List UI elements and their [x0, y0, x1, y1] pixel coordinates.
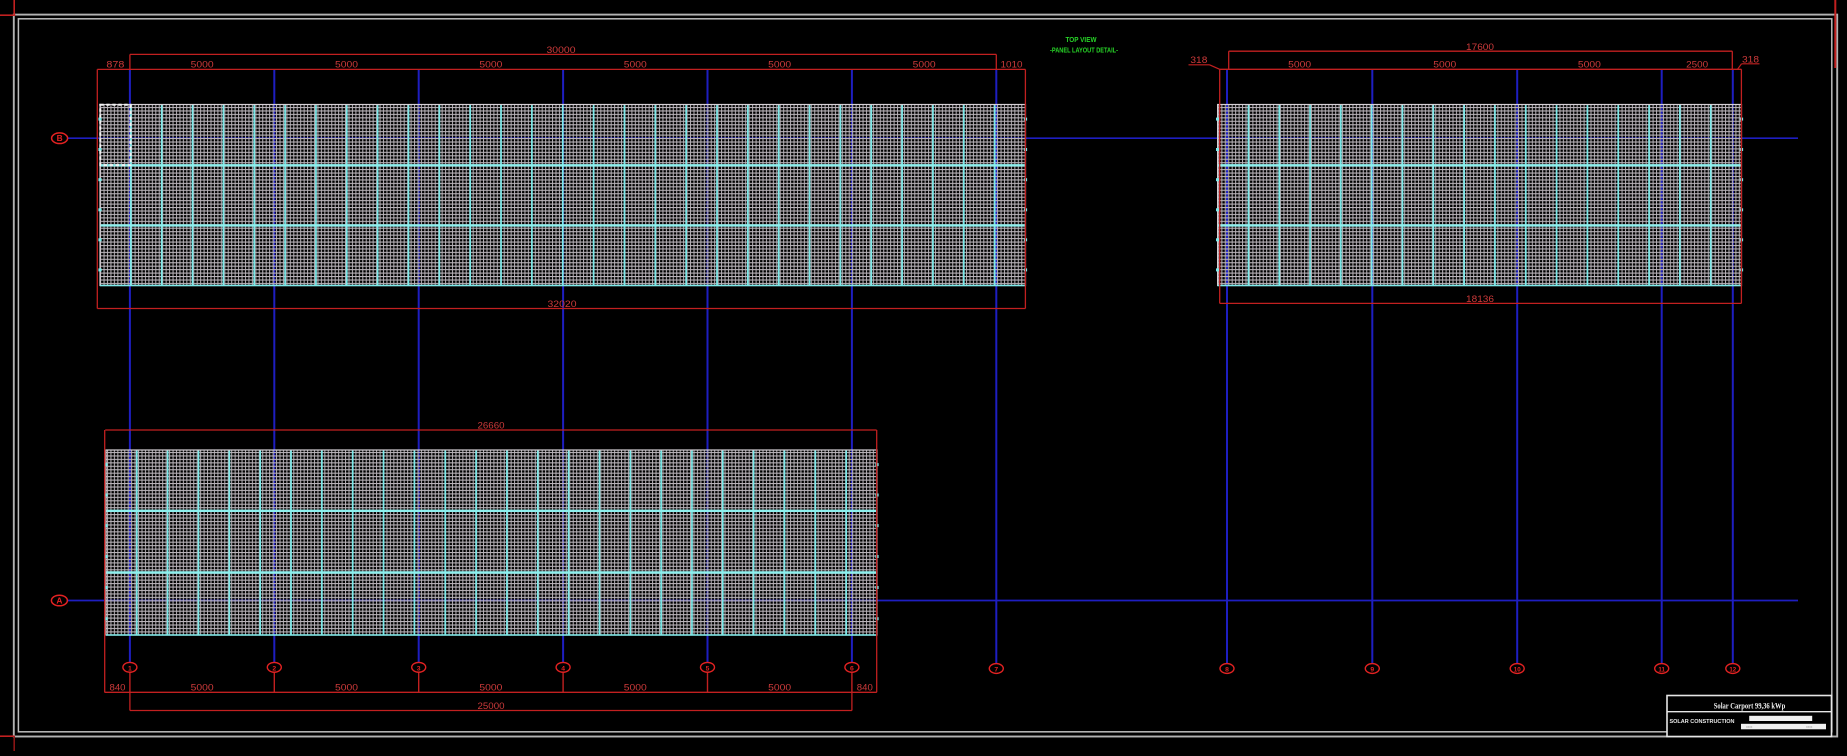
svg-text:5000: 5000 — [624, 683, 647, 693]
svg-text:1010: 1010 — [1001, 60, 1023, 70]
svg-text:5000: 5000 — [1433, 60, 1456, 70]
svg-text:5000: 5000 — [624, 60, 647, 70]
svg-text:17600: 17600 — [1466, 42, 1494, 52]
svg-text:A: A — [56, 596, 62, 606]
svg-text:5000: 5000 — [479, 683, 502, 693]
svg-text:2: 2 — [272, 665, 276, 672]
svg-text:10: 10 — [1514, 666, 1521, 673]
svg-text:3: 3 — [417, 665, 421, 672]
svg-text:30000: 30000 — [547, 45, 576, 55]
svg-text:18136: 18136 — [1466, 294, 1494, 304]
svg-text:5000: 5000 — [1578, 60, 1601, 70]
svg-text:878: 878 — [106, 60, 124, 70]
svg-text:5000: 5000 — [768, 60, 791, 70]
svg-text:SOLAR CONSTRUCTION: SOLAR CONSTRUCTION — [1670, 719, 1735, 725]
svg-text:5000: 5000 — [191, 683, 214, 693]
svg-text:B: B — [57, 133, 63, 143]
svg-text:318: 318 — [1190, 55, 1207, 65]
svg-text:5000: 5000 — [1288, 60, 1311, 70]
svg-text:5000: 5000 — [335, 683, 358, 693]
svg-text:5000: 5000 — [913, 60, 936, 70]
svg-text:5000: 5000 — [768, 683, 791, 693]
svg-text:Solar Carport 99,36 kWp: Solar Carport 99,36 kWp — [1714, 700, 1786, 710]
svg-text:7: 7 — [994, 666, 998, 673]
svg-text:25000: 25000 — [478, 701, 505, 711]
svg-text:xxxx: xxxx — [1746, 725, 1753, 729]
svg-text:8: 8 — [1225, 666, 1229, 673]
svg-text:5000: 5000 — [479, 60, 502, 70]
svg-text:9: 9 — [1370, 666, 1374, 673]
svg-text:4: 4 — [561, 665, 565, 672]
svg-text:840: 840 — [857, 683, 873, 693]
svg-text:32020: 32020 — [548, 299, 577, 309]
svg-text:-PANEL LAYOUT DETAIL-: -PANEL LAYOUT DETAIL- — [1050, 47, 1119, 54]
svg-text:2500: 2500 — [1686, 60, 1708, 70]
svg-text:1: 1 — [128, 665, 132, 672]
svg-text:xxxx: xxxx — [1806, 725, 1813, 729]
svg-text:5000: 5000 — [335, 60, 358, 70]
svg-text:11: 11 — [1658, 666, 1665, 673]
svg-text:26660: 26660 — [478, 421, 505, 431]
svg-text:318: 318 — [1742, 54, 1759, 64]
svg-text:12: 12 — [1729, 666, 1736, 673]
svg-text:5000: 5000 — [191, 60, 214, 70]
svg-text:TOP VIEW: TOP VIEW — [1066, 35, 1098, 44]
svg-text:5: 5 — [706, 665, 710, 672]
svg-text:6: 6 — [850, 665, 854, 672]
svg-text:840: 840 — [110, 683, 126, 693]
